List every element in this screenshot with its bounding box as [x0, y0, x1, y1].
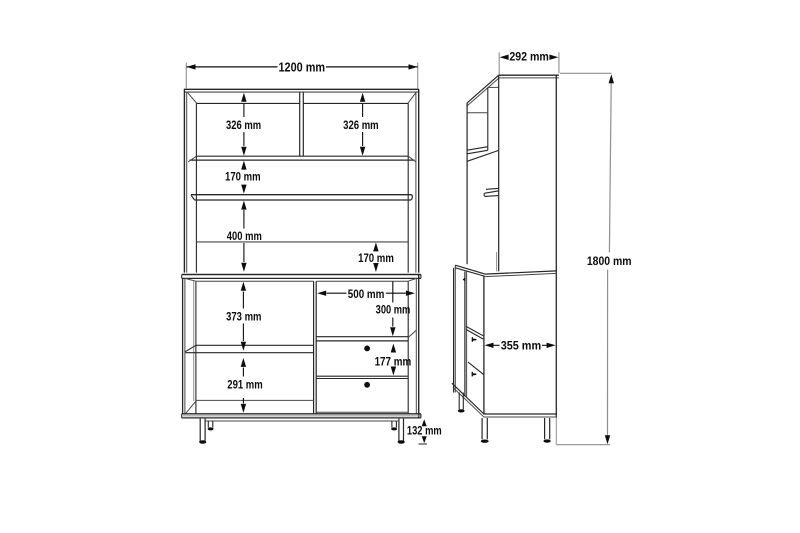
svg-text:355 mm: 355 mm: [501, 338, 541, 352]
svg-text:500 mm: 500 mm: [348, 287, 385, 301]
svg-text:300 mm: 300 mm: [376, 303, 411, 317]
svg-text:292 mm: 292 mm: [509, 49, 549, 63]
svg-text:291 mm: 291 mm: [227, 378, 262, 392]
svg-text:132 mm: 132 mm: [407, 424, 442, 438]
svg-text:326 mm: 326 mm: [226, 118, 261, 132]
svg-text:1200 mm: 1200 mm: [279, 61, 326, 75]
svg-text:326 mm: 326 mm: [343, 118, 379, 132]
svg-text:373 mm: 373 mm: [226, 309, 261, 323]
svg-text:400 mm: 400 mm: [227, 229, 262, 243]
svg-text:177 mm: 177 mm: [375, 354, 412, 368]
svg-text:170 mm: 170 mm: [358, 251, 394, 265]
svg-text:170 mm: 170 mm: [225, 170, 261, 184]
svg-text:1800 mm: 1800 mm: [587, 254, 632, 268]
